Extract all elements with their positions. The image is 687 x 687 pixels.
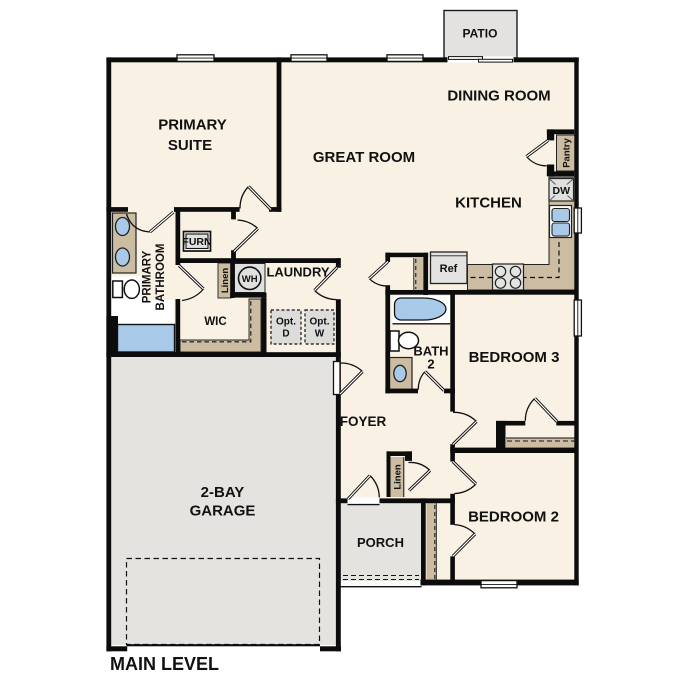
svg-text:W: W [315, 329, 325, 340]
svg-text:BEDROOM 3: BEDROOM 3 [469, 349, 560, 366]
svg-text:PORCH: PORCH [357, 535, 404, 550]
svg-text:2-BAY: 2-BAY [201, 484, 245, 501]
svg-text:DINING ROOM: DINING ROOM [447, 88, 550, 105]
svg-text:MAIN LEVEL: MAIN LEVEL [110, 654, 219, 674]
svg-text:DW: DW [553, 185, 571, 197]
svg-text:FOYER: FOYER [340, 414, 387, 429]
svg-text:Linen: Linen [220, 268, 231, 294]
svg-text:PRIMARY: PRIMARY [158, 117, 227, 134]
svg-text:WIC: WIC [204, 316, 226, 328]
svg-text:WH: WH [242, 274, 258, 285]
svg-text:SUITE: SUITE [168, 137, 212, 154]
svg-text:2: 2 [427, 357, 434, 372]
svg-text:D: D [282, 329, 289, 340]
svg-text:LAUNDRY: LAUNDRY [266, 265, 329, 280]
svg-text:Opt.: Opt. [310, 317, 330, 328]
svg-text:PRIMARY: PRIMARY [142, 250, 154, 303]
svg-text:Pantry: Pantry [562, 138, 573, 168]
svg-text:Opt.: Opt. [276, 317, 296, 328]
svg-text:Ref: Ref [440, 263, 458, 275]
svg-text:KITCHEN: KITCHEN [455, 195, 522, 212]
svg-text:Linen: Linen [393, 464, 404, 490]
svg-text:GARAGE: GARAGE [190, 503, 256, 520]
svg-text:BATHROOM: BATHROOM [155, 244, 167, 311]
svg-text:BEDROOM 2: BEDROOM 2 [468, 509, 559, 526]
svg-text:PATIO: PATIO [463, 27, 498, 41]
svg-text:FURN: FURN [182, 236, 211, 248]
svg-text:GREAT ROOM: GREAT ROOM [313, 149, 415, 166]
